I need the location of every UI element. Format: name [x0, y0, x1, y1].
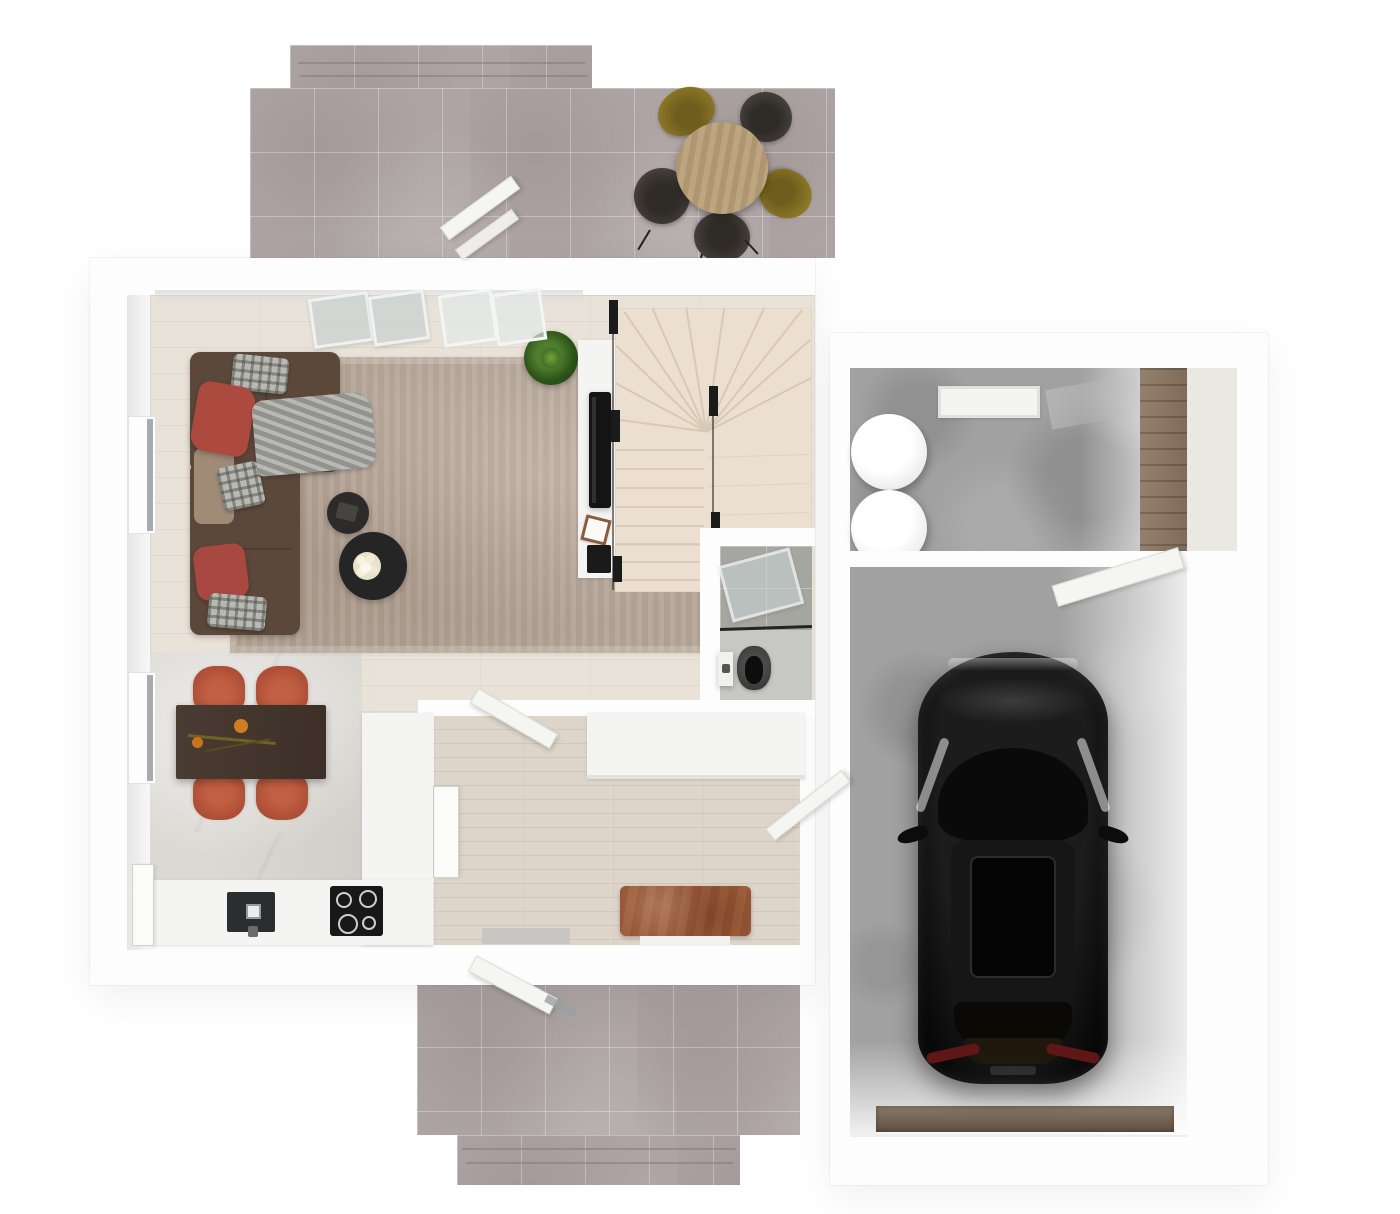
stair-rail-post-3 [613, 556, 622, 582]
car [918, 652, 1108, 1084]
stair-tread-4 [616, 506, 704, 508]
burner-2 [359, 890, 377, 908]
kitchen-counter [150, 880, 433, 945]
dining-chair-bottom-2 [256, 774, 308, 820]
car-sunroof [970, 856, 1056, 978]
bathroom-sink [718, 652, 733, 686]
stair-tread-2 [616, 468, 704, 470]
hallway-door-closed [433, 786, 459, 878]
stair-rail-post-1 [609, 300, 618, 334]
patio-door-pane-2 [368, 289, 430, 346]
garage-door-threshold [876, 1106, 1174, 1132]
patio-door-pane-3 [438, 288, 499, 347]
bathroom-wall-left [700, 528, 720, 708]
hallway-cabinet [587, 713, 805, 779]
coffee-table-small [327, 492, 369, 534]
stair-rail-left [612, 302, 614, 590]
bottom-step-edge-2 [466, 1162, 733, 1164]
bottom-patio [417, 983, 800, 1135]
stair-tread-8 [616, 579, 704, 581]
patio-door-pane-4 [491, 288, 548, 346]
burner-3 [338, 914, 358, 934]
toilet-seat [745, 656, 763, 684]
utility-skylight [938, 386, 1040, 418]
window-pane-2 [147, 675, 153, 781]
patio-door-pane-1 [308, 291, 374, 349]
stair-tread-3 [616, 487, 704, 489]
tablet-on-table [335, 502, 358, 522]
sofa-red-pillow-1 [188, 379, 257, 458]
car-taillight-right [1045, 1043, 1100, 1065]
sofa-throw-blanket [251, 391, 377, 477]
top-step-edge-1 [298, 62, 585, 64]
coffee-table-large [339, 532, 407, 600]
top-patio-steps [290, 45, 592, 90]
toilet [737, 646, 771, 690]
stair-tread-7 [616, 561, 704, 563]
utility-side-strip [1187, 368, 1237, 552]
car-rear-plate [990, 1066, 1036, 1075]
table-decor-flower-1 [234, 719, 248, 733]
kitchen-faucet [246, 904, 261, 919]
stair-tread-5 [616, 525, 704, 527]
kitchen-sink [227, 892, 275, 932]
dining-chair-bottom-1 [193, 774, 245, 820]
sofa-plaid-pillow-3 [207, 593, 268, 632]
patio-round-table [676, 122, 768, 214]
utility-wood-paneling [1140, 368, 1187, 552]
top-step-edge-2 [300, 75, 588, 77]
sink-faucet [722, 664, 730, 673]
floor-plan-canvas [0, 0, 1400, 1214]
utility-tank-1 [851, 414, 927, 490]
bottom-patio-steps [457, 1135, 740, 1185]
car-windshield [938, 748, 1088, 842]
window-left-1 [128, 416, 156, 534]
stair-tread-6 [616, 543, 704, 545]
car-taillight-left [925, 1043, 980, 1065]
staircase-lower-flight [615, 545, 706, 592]
entry-doormat [482, 928, 570, 944]
media-box [587, 545, 611, 573]
stair-rail-post-4 [709, 386, 718, 416]
kitchen-faucet-handle [248, 926, 258, 937]
tv [589, 392, 611, 508]
cooktop [330, 886, 383, 936]
plant-center [541, 348, 561, 368]
garage-door-line [850, 1135, 1187, 1137]
stair-tread-1 [616, 449, 704, 451]
entry-bench [620, 886, 751, 936]
bench-mat [640, 936, 730, 946]
cabinet-edge [587, 775, 805, 779]
stair-rail-post-2 [611, 410, 620, 442]
car-front-highlight [948, 658, 1078, 670]
sofa [190, 352, 340, 648]
kitchen-side-door [132, 864, 154, 946]
window-left-2 [128, 672, 156, 784]
flower-bouquet [353, 552, 381, 580]
bottom-step-edge-1 [462, 1148, 736, 1150]
burner-4 [362, 916, 376, 930]
dining-table [176, 705, 326, 779]
car-hood-shine [934, 678, 1092, 724]
window-pane-1 [147, 419, 153, 531]
table-decor-flower-2 [192, 737, 203, 748]
tv-screen-shine [592, 397, 596, 503]
burner-1 [336, 892, 352, 908]
